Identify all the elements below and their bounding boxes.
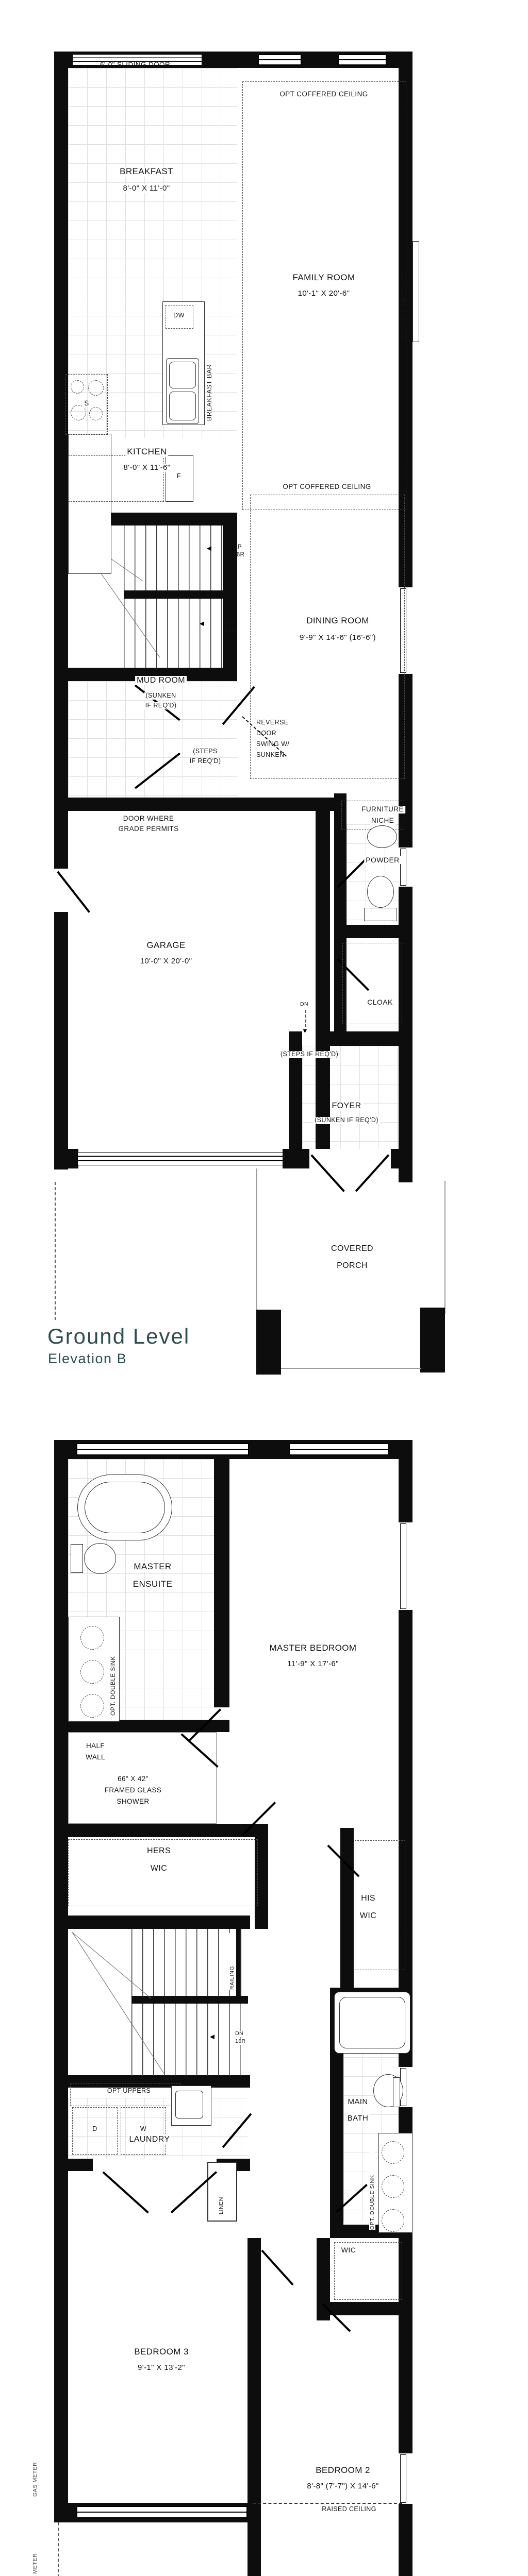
opt-coffered-dining-label: OPT COFFERED CEILING bbox=[281, 483, 372, 491]
stair-dn-label: DN bbox=[235, 2031, 243, 2037]
foyer-sub-label: (SUNKEN IF REQ'D) bbox=[313, 1117, 380, 1124]
breakfast-bar-label: BREAKFAST BAR bbox=[206, 336, 213, 421]
stair-up-risers: 16R bbox=[233, 552, 244, 558]
room-dim-master: 11'-9" X 17'-6" bbox=[287, 1660, 339, 1669]
opt-uppers-label: OPT UPPERS bbox=[106, 2088, 152, 2095]
fridge-label: F bbox=[177, 473, 181, 480]
room-label-dining: DINING ROOM bbox=[306, 616, 369, 626]
porch-edge bbox=[281, 1368, 421, 1369]
room-dim-bed3: 9'-1" X 13'-2" bbox=[138, 2364, 185, 2372]
wall-segment bbox=[330, 1031, 412, 1046]
powder-sink bbox=[367, 825, 397, 848]
room-label-family: FAMILY ROOM bbox=[293, 273, 355, 283]
wall-segment bbox=[334, 925, 412, 938]
reverse-door-note-4: SUNKEN bbox=[256, 752, 285, 759]
main-bath-tub-inner bbox=[339, 1997, 405, 2048]
opt-coffered-family-label: OPT COFFERED CEILING bbox=[279, 91, 368, 98]
room-dim-bed2: 8'-8" (7'-7") X 14'-6" bbox=[307, 2482, 378, 2491]
mud-sub1: (SUNKEN bbox=[144, 692, 177, 700]
stair-landing bbox=[124, 590, 223, 599]
wall-segment bbox=[214, 1459, 229, 1707]
room-label-cloak: CLOAK bbox=[366, 998, 394, 1006]
railing-label: RAILING bbox=[229, 1933, 235, 1990]
burner-icon bbox=[71, 380, 84, 394]
linen-label: LINEN bbox=[218, 2170, 224, 2214]
steps-note-2: IF REQ'D) bbox=[188, 758, 223, 765]
toilet-tank bbox=[364, 908, 397, 921]
sink-basin bbox=[169, 392, 196, 420]
reverse-door-note-2: DOOR bbox=[256, 730, 276, 737]
steps-foyer-note: (STEPS IF REQ'D) bbox=[279, 1051, 340, 1058]
ground-level-subtitle: Elevation B bbox=[48, 1351, 127, 1367]
burner-icon bbox=[89, 407, 103, 420]
washer-label: W bbox=[139, 2126, 148, 2133]
wall-segment bbox=[223, 513, 237, 673]
door-grade-note-2: GRADE PERMITS bbox=[117, 825, 180, 833]
room-label-bed3: BEDROOM 3 bbox=[134, 2347, 189, 2357]
ground-level-title: Ground Level bbox=[47, 1324, 190, 1349]
down-arrow-icon: ▼ bbox=[302, 1027, 308, 1034]
half-wall bbox=[68, 1725, 130, 1729]
window bbox=[400, 1523, 406, 1609]
his-wic-label-2: WIC bbox=[358, 1911, 378, 1921]
sink-icon bbox=[382, 2209, 404, 2232]
garage-door bbox=[77, 1152, 289, 1165]
bed3-door-opening bbox=[93, 2159, 217, 2171]
stair-dn-risers: 16R bbox=[235, 2039, 245, 2045]
furniture-niche-label-1: FURNITURE bbox=[360, 806, 405, 814]
main-bath-label-2: BATH bbox=[346, 2114, 370, 2123]
floor-plan-sheet: 6'-0" SLIDING DOOR BREAKFAST 8'-0" X 11'… bbox=[0, 0, 528, 2576]
opt-double-sink-label: OPT. DOUBLE SINK bbox=[369, 2139, 375, 2230]
room-dim-breakfast: 8'-0" X 11'-0" bbox=[122, 184, 172, 193]
stair-treads-down bbox=[124, 599, 223, 668]
hydro-meter-label: HYDRO METER bbox=[32, 2519, 38, 2576]
porch-pillar bbox=[256, 1310, 281, 1375]
porch-edge bbox=[256, 1168, 257, 1315]
property-dash-line bbox=[55, 1182, 56, 1320]
raised-ceiling-label: RAISED CEILING bbox=[320, 2506, 378, 2513]
dryer-label: D bbox=[91, 2126, 98, 2133]
window bbox=[289, 1443, 389, 1455]
room-label-foyer: FOYER bbox=[330, 1101, 362, 1111]
window bbox=[76, 2506, 247, 2518]
window bbox=[258, 54, 302, 65]
stove-label: S bbox=[82, 400, 90, 408]
toilet-bowl bbox=[367, 876, 394, 908]
room-label-bed2: BEDROOM 2 bbox=[316, 2466, 370, 2476]
room-label-garage: GARAGE bbox=[146, 941, 185, 951]
wall-segment bbox=[54, 52, 68, 1170]
room-label-breakfast: BREAKFAST bbox=[118, 167, 175, 177]
wall-segment bbox=[54, 1149, 78, 1168]
wall-segment bbox=[54, 798, 343, 811]
raised-ceiling-line bbox=[253, 2503, 402, 2504]
sink-icon bbox=[80, 1660, 104, 1684]
opt-double-sink-label: OPT. DOUBLE SINK bbox=[110, 1627, 117, 1716]
room-label-ensuite-2: ENSUITE bbox=[131, 1580, 174, 1589]
stair-up-label: UP bbox=[233, 544, 242, 551]
sink-icon bbox=[382, 2141, 404, 2164]
sink-icon bbox=[80, 1694, 104, 1718]
window bbox=[76, 1443, 249, 1455]
stair-dn-risers: 14R bbox=[225, 627, 236, 634]
bed3-door-leaf bbox=[103, 2171, 149, 2213]
hers-wic-label-2: WIC bbox=[149, 1864, 169, 1873]
gas-meter-label: GAS METER bbox=[32, 2445, 38, 2497]
room-label-mud: MUD ROOM bbox=[135, 676, 187, 685]
shower-label-3: SHOWER bbox=[115, 1798, 151, 1806]
porch-label-1: COVERED bbox=[331, 1244, 373, 1253]
toilet-tank bbox=[71, 1544, 83, 1573]
porch-label-2: PORCH bbox=[337, 1261, 368, 1270]
down-arrow-icon: ◄ bbox=[198, 620, 206, 628]
wall-segment bbox=[54, 1824, 268, 1837]
his-wic-outline bbox=[355, 1840, 405, 1970]
room-dim-garage: 10'-0" X 20'-0" bbox=[140, 957, 192, 966]
main-bath-label-1: MAIN bbox=[346, 2098, 369, 2107]
toilet-bowl bbox=[84, 1543, 116, 1574]
window bbox=[400, 849, 406, 886]
kitchen-counter bbox=[68, 434, 111, 574]
half-wall-label-1: HALF bbox=[85, 1742, 106, 1750]
shower-label-1: 66" X 42" bbox=[116, 1775, 150, 1783]
room-dim-family: 10'-1" X 20'-6" bbox=[298, 290, 350, 298]
half-wall-label-2: WALL bbox=[84, 1754, 107, 1761]
toilet-tank bbox=[393, 2077, 400, 2107]
porch-edge bbox=[444, 1181, 445, 1314]
cloak-rod-outline bbox=[342, 943, 402, 1024]
porch-pillar bbox=[420, 1308, 445, 1372]
mud-sub2: IF REQ'D) bbox=[144, 702, 178, 709]
wall-segment bbox=[340, 1828, 354, 1989]
room-label-laundry: LAUNDRY bbox=[128, 2135, 172, 2144]
burner-icon bbox=[88, 380, 104, 396]
reverse-door-note-1: REVERSE bbox=[256, 719, 289, 726]
sink-basin bbox=[169, 362, 196, 388]
his-wic-label-1: HIS bbox=[359, 1894, 377, 1903]
reverse-door-note-3: SWING W/ bbox=[256, 741, 289, 748]
room-dim-dining: 9'-9" X 14'-6" (16'-6") bbox=[300, 634, 376, 642]
wall-segment bbox=[330, 2302, 412, 2315]
window bbox=[338, 54, 387, 65]
stair-treads bbox=[131, 2004, 248, 2076]
laundry-sink-basin bbox=[175, 2091, 203, 2119]
room-label-ensuite-1: MASTER bbox=[132, 1562, 173, 1572]
sliding-door-label: 6'-0" SLIDING DOOR bbox=[100, 61, 170, 69]
wall-segment bbox=[54, 1916, 250, 1929]
stair-treads-up bbox=[124, 526, 223, 590]
stair-dn-label: DN bbox=[225, 619, 234, 626]
furniture-niche-label-2: NICHE bbox=[370, 817, 395, 825]
down-arrow-icon: ◄ bbox=[208, 2033, 216, 2041]
sink-icon bbox=[80, 1626, 104, 1650]
room-label-kitchen: KITCHEN bbox=[125, 447, 168, 457]
wall-segment bbox=[247, 2238, 261, 2576]
door-leaf bbox=[261, 2250, 294, 2285]
bathtub-inner bbox=[85, 1482, 165, 1533]
sink-icon bbox=[382, 2175, 404, 2198]
room-label-powder: POWDER bbox=[364, 856, 401, 864]
shower-label-2: FRAMED GLASS bbox=[103, 1787, 163, 1794]
up-arrow-icon: ◄ bbox=[205, 545, 213, 552]
window bbox=[400, 2454, 406, 2503]
foyer-dn-label: DN bbox=[300, 1002, 308, 1008]
dn-dash-line bbox=[305, 1010, 306, 1027]
wall-segment bbox=[54, 1440, 68, 2522]
room-label-master: MASTER BEDROOM bbox=[269, 1643, 356, 1653]
electric-fireplace-label: ELECTRIC FIREPLACE bbox=[401, 242, 407, 340]
wic-label: WIC bbox=[340, 2246, 357, 2254]
door-grade-note-1: DOOR WHERE bbox=[122, 815, 176, 823]
hers-wic-label-1: HERS bbox=[145, 1846, 172, 1856]
property-dash-line bbox=[58, 2522, 59, 2576]
wall-segment bbox=[316, 811, 330, 1150]
electric-fireplace-unit bbox=[412, 241, 419, 342]
room-dim-kitchen: 8'-0" X 11'-6" bbox=[122, 464, 172, 472]
steps-note-1: (STEPS bbox=[191, 748, 219, 755]
dishwasher-label: DW bbox=[172, 312, 186, 319]
optional-counter bbox=[68, 455, 164, 502]
